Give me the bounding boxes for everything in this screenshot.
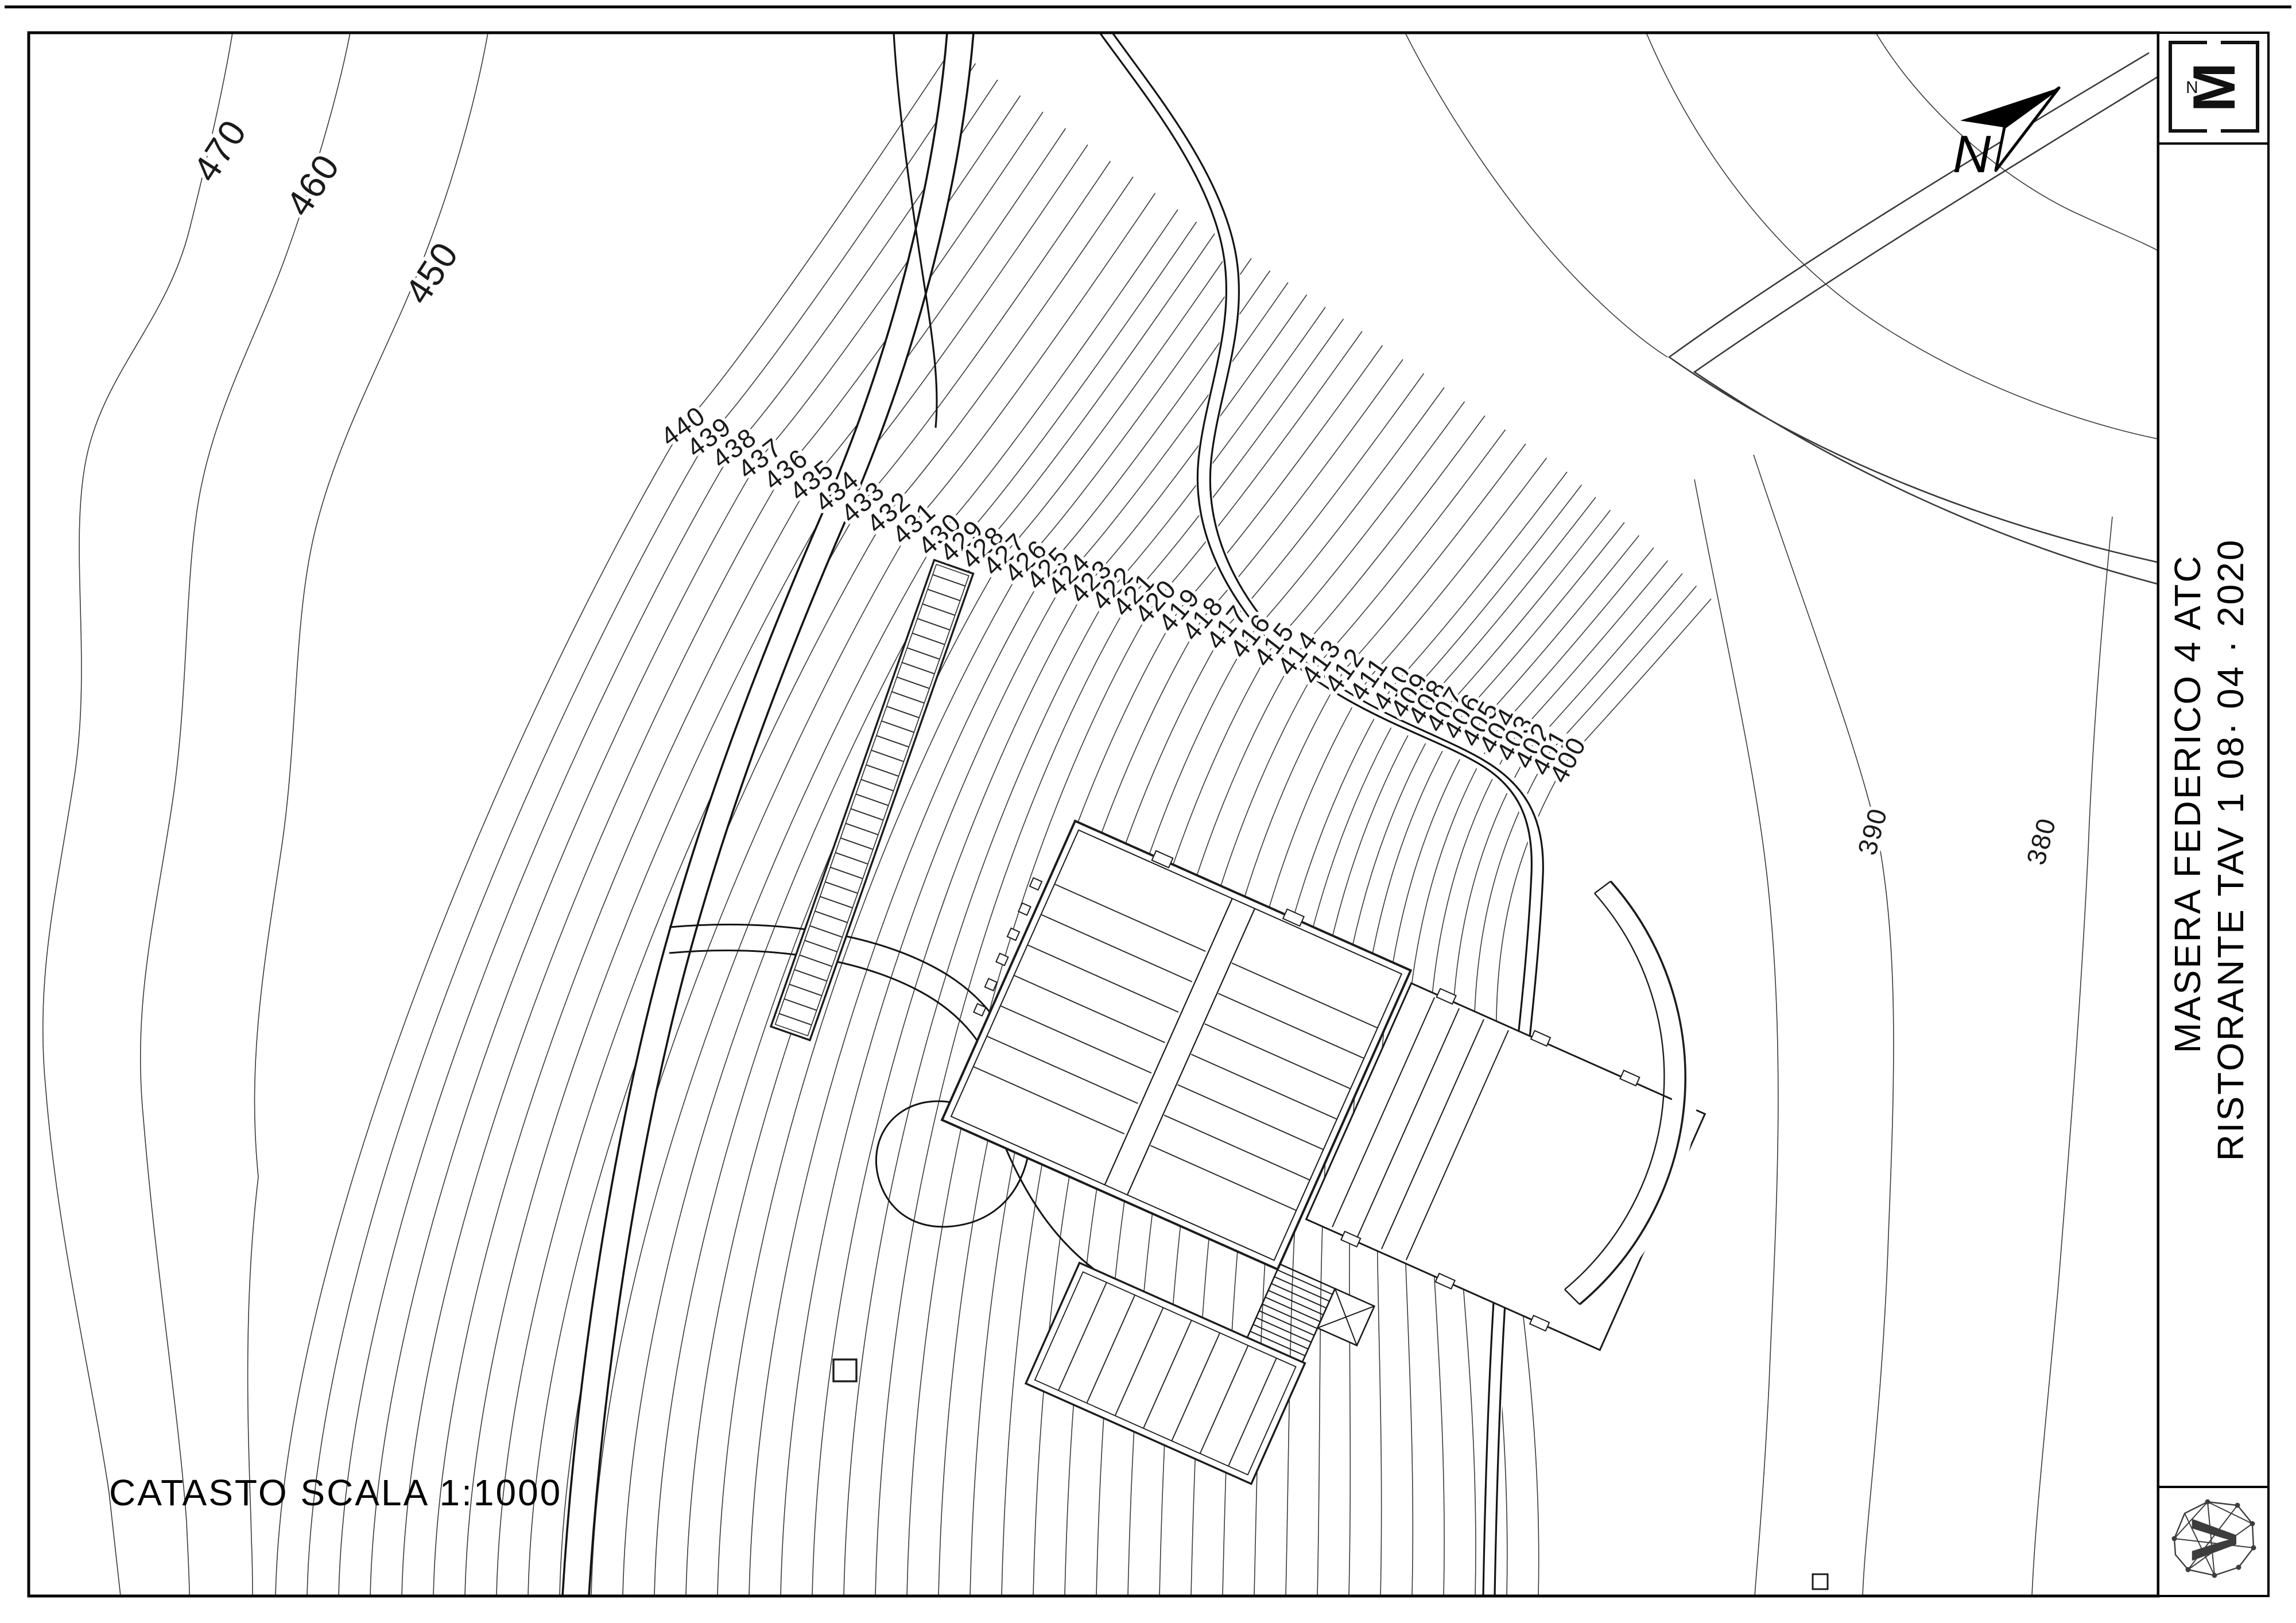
map-area: 4404394384374364354344334324314304294284… — [43, 33, 2159, 1596]
north-arrow: N — [1953, 88, 2059, 184]
elevation-label: 470 — [185, 112, 255, 189]
cadastral-marker — [833, 1359, 856, 1381]
boundary-curve — [1646, 33, 2159, 439]
contour-line — [465, 145, 1088, 1596]
drawing-sheet: 4404394384374364354344334324314304294284… — [0, 0, 2296, 1623]
elevation-label: 390 — [1852, 804, 1893, 858]
road-main — [563, 33, 974, 1596]
building-complex — [844, 809, 1712, 1591]
elevation-label: 380 — [2020, 814, 2062, 867]
monogram-v: V — [2178, 1519, 2250, 1562]
boundary-curve — [1405, 33, 1667, 357]
contour-line — [433, 129, 1066, 1597]
site-plan-svg: 4404394384374364354344334324314304294284… — [0, 0, 2296, 1623]
contour-line — [1754, 455, 1894, 1596]
contour-line — [1694, 479, 1778, 1596]
title-block: M N MASERA FEDERICO 4 ATC RISTORANTE TAV… — [2158, 33, 2268, 1596]
contour-labels: 4404394384374364354344334324314304294284… — [185, 112, 2062, 868]
drawing-title-date: RISTORANTE TAV 1 08· 04 · 2020 — [2210, 539, 2251, 1161]
boundary-chevron — [1669, 53, 2159, 563]
scale-caption: CATASTO SCALA 1:1000 — [109, 1472, 562, 1513]
elevation-label: 450 — [397, 234, 467, 311]
contour-line — [141, 33, 350, 1596]
contour-line — [402, 112, 1043, 1596]
north-label: N — [1953, 125, 1991, 184]
monogram-n: N — [2186, 78, 2198, 97]
boundary-chevron — [1694, 76, 2159, 584]
contour-line — [2032, 517, 2112, 1596]
cadastral-marker — [1813, 1574, 1828, 1589]
project-title: MASERA FEDERICO 4 ATC — [2167, 554, 2208, 1053]
contour-line — [43, 33, 232, 1596]
elevation-label: 460 — [278, 146, 348, 223]
